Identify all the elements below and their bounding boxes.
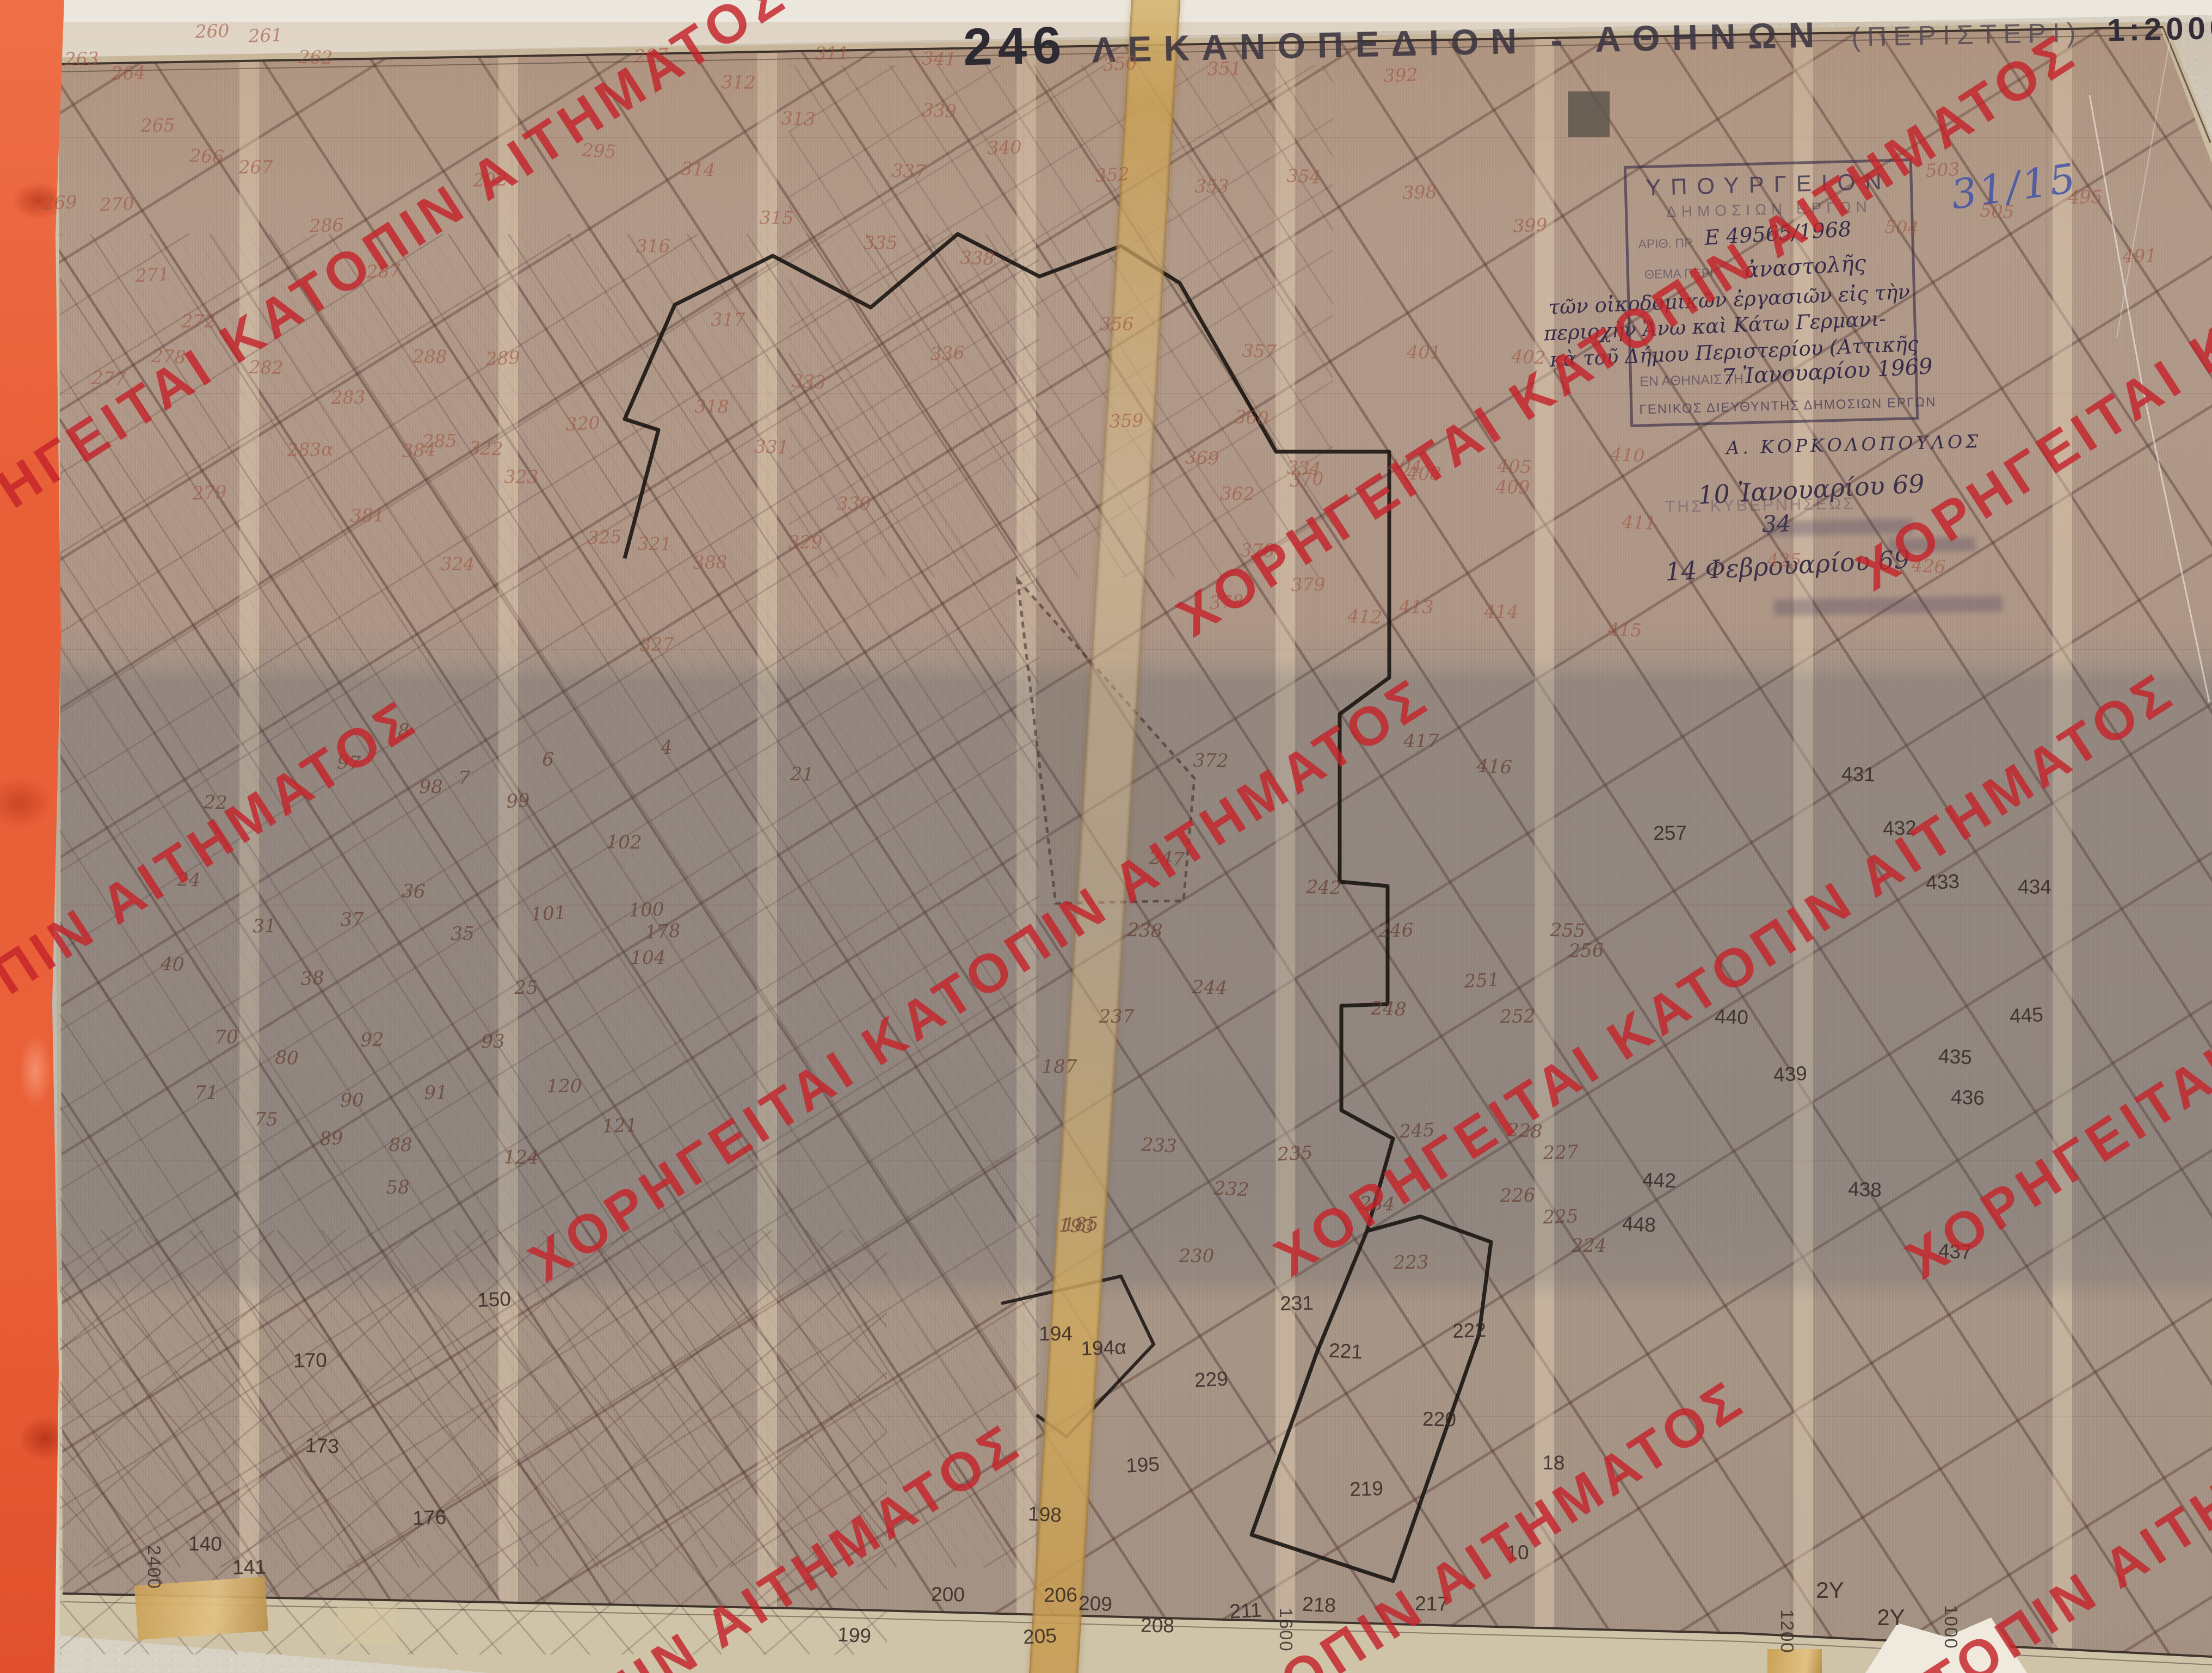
block-number: 504 [1884, 216, 1920, 239]
block-number: 265 [140, 114, 175, 136]
block-number: 233 [1141, 1134, 1178, 1157]
block-number: 173 [305, 1434, 339, 1458]
block-number: 224 [1572, 1235, 1607, 1257]
block-number: 206 [1044, 1583, 1077, 1607]
block-number: 266 [189, 145, 225, 168]
block-number: 372 [1193, 749, 1229, 772]
block-number: 260 [195, 20, 230, 42]
block-number: 244 [1192, 976, 1228, 999]
block-number: 335 [864, 232, 898, 254]
block-number: 93 [481, 1031, 505, 1053]
block-number: 350 [1102, 52, 1138, 75]
block-number: 359 [1109, 409, 1144, 432]
block-number: 405 [1497, 455, 1532, 477]
edge-coordinate-label: 1200 [1777, 1609, 1797, 1653]
block-number: 351 [1207, 58, 1242, 79]
block-number: 327 [639, 633, 674, 655]
block-number: 221 [1328, 1339, 1363, 1363]
block-number: 80 [274, 1047, 299, 1069]
block-number: 223 [1393, 1251, 1429, 1274]
block-number: 398 [1402, 181, 1437, 203]
block-number: 442 [1642, 1168, 1676, 1192]
block-number: 269 [42, 191, 77, 213]
area-mark: 2Y [1816, 1577, 1844, 1603]
block-number: 21 [790, 763, 815, 785]
block-number: 339 [922, 99, 957, 121]
faded-stamp-overprint: ΤΗΣ ΚΥΒΕΡΝΗΣΕΩΣ [1665, 495, 1856, 516]
block-number: 231 [1280, 1291, 1314, 1315]
block-number: 262 [298, 46, 333, 68]
block-number: 370 [1289, 468, 1324, 491]
block-number: 238 [1127, 919, 1163, 942]
block-number: 102 [606, 831, 642, 853]
block-number: 124 [503, 1146, 539, 1168]
block-number: 194 [1039, 1323, 1073, 1345]
area-mark: 2Y [1877, 1604, 1905, 1631]
block-number: 320 [565, 412, 601, 435]
block-number: 195 [1125, 1453, 1160, 1477]
block-number: 354 [1286, 165, 1322, 188]
block-number: 337 [891, 159, 926, 182]
block-number: 312 [721, 71, 756, 93]
block-number: 208 [1141, 1614, 1174, 1637]
block-number: 439 [1773, 1062, 1808, 1086]
block-number: 98 [419, 776, 442, 798]
block-number: 392 [1383, 64, 1418, 86]
block-number: 25 [514, 977, 538, 999]
block-number: 222 [1452, 1319, 1486, 1343]
block-number: 200 [931, 1583, 965, 1606]
block-number: 227 [1543, 1141, 1579, 1164]
block-number: 193 [1058, 1215, 1094, 1238]
block-number: 362 [1220, 483, 1255, 505]
block-number: 120 [547, 1075, 582, 1097]
block-number: 35 [451, 923, 475, 945]
block-number: 235 [1277, 1142, 1314, 1165]
block-number: 384 [402, 439, 437, 462]
block-number: 264 [111, 61, 146, 84]
block-number: 323 [504, 466, 539, 488]
block-number: 311 [815, 42, 849, 64]
block-number: 270 [100, 193, 134, 215]
block-number: 99 [506, 790, 530, 813]
block-number: 255 [1550, 919, 1586, 942]
block-number: 416 [1476, 755, 1513, 778]
block-number: 92 [360, 1029, 385, 1051]
block-number: 75 [254, 1109, 278, 1131]
block-number: 317 [711, 309, 745, 330]
block-number: 58 [386, 1177, 410, 1199]
block-number: 448 [1622, 1212, 1656, 1237]
block-number: 399 [1513, 214, 1548, 236]
scanned-map-page: 246 ΛΕΚΑΝΟΠΕΔΙΟΝ - ΑΘΗΝΩΝ (ΠΕΡΙΣΤΕΡΙ) 1:… [0, 0, 2212, 1673]
block-number: 338 [960, 247, 995, 269]
block-number: 505 [1980, 200, 2015, 223]
block-number: 257 [1653, 821, 1687, 845]
block-number: 279 [192, 481, 227, 504]
block-number: 187 [1042, 1056, 1077, 1078]
block-number: 256 [1568, 939, 1604, 962]
block-number: 315 [759, 207, 794, 229]
block-number: 40 [160, 953, 184, 976]
block-number: 121 [602, 1115, 638, 1137]
orange-edge-strip [0, 0, 64, 1673]
block-number: 91 [424, 1082, 448, 1104]
stamp-protocol-label: ΑΡΙΘ. ΠΡ. [1638, 236, 1695, 252]
block-number: 491 [2122, 244, 2157, 267]
block-number: 329 [788, 531, 823, 553]
block-number: 90 [340, 1090, 364, 1112]
block-number: 248 [1371, 998, 1407, 1020]
block-number: 150 [477, 1288, 511, 1312]
block-number: 434 [2018, 876, 2051, 899]
block-number: 140 [188, 1532, 222, 1555]
block-number: 230 [1179, 1245, 1215, 1267]
block-number: 7 [458, 767, 470, 789]
block-number: 271 [135, 263, 170, 286]
block-number: 352 [1095, 163, 1130, 186]
block-number: 314 [681, 158, 716, 181]
block-number: 176 [412, 1506, 446, 1530]
block-number: 333 [791, 370, 827, 393]
block-number: 431 [1841, 762, 1875, 786]
block-number: 283 [331, 386, 366, 408]
block-number: 411 [1622, 511, 1657, 534]
block-number: 252 [1500, 1005, 1536, 1028]
block-number: 209 [1078, 1592, 1112, 1616]
block-number: 445 [2009, 1003, 2044, 1028]
block-number: 495 [2068, 186, 2103, 208]
block-number: 226 [1500, 1184, 1536, 1207]
block-number: 313 [781, 107, 816, 130]
block-number: 263 [64, 48, 99, 70]
block-number: 232 [1213, 1177, 1250, 1201]
block-number: 436 [1950, 1086, 1985, 1110]
block-number: 170 [293, 1349, 327, 1372]
block-number: 316 [636, 235, 670, 257]
block-number: 412 [1347, 605, 1383, 628]
block-number: 37 [340, 909, 364, 931]
stamp-director-line: ΓΕΝΙΚΟΣ ΔΙΕΥΘΥΝΤΗΣ ΔΗΜΟΣΙΩΝ ΕΡΓΩΝ [1639, 395, 1937, 417]
block-number: 353 [1195, 176, 1229, 197]
block-number: 318 [694, 396, 729, 417]
block-number: 178 [645, 920, 681, 943]
block-number: 71 [194, 1082, 218, 1104]
block-number: 286 [309, 214, 344, 236]
block-number: 6 [542, 749, 554, 771]
block-number: 211 [1229, 1598, 1262, 1623]
block-number: 38 [300, 967, 324, 990]
block-number: 199 [837, 1623, 872, 1647]
block-number: 415 [1607, 618, 1642, 641]
tape-patch [337, 1606, 397, 1644]
block-number: 218 [1302, 1592, 1336, 1617]
block-number: 101 [531, 902, 567, 925]
block-number: 36 [402, 880, 426, 902]
block-number: 88 [389, 1134, 412, 1156]
block-number: 31 [252, 915, 276, 938]
block-number: 237 [1099, 1006, 1135, 1028]
block-number: 356 [1100, 313, 1134, 335]
block-number: 381 [350, 505, 385, 526]
block-number: 360 [1234, 406, 1269, 428]
block-number: 4 [660, 736, 673, 759]
block-number: 336 [930, 342, 965, 364]
block-number: 89 [319, 1127, 343, 1150]
block-number: 330 [837, 493, 871, 514]
block-number: 341 [922, 47, 957, 70]
block-number: 261 [248, 24, 283, 46]
block-number: 289 [485, 347, 521, 370]
block-number: 70 [214, 1026, 238, 1049]
block-number: 324 [441, 553, 475, 575]
block-number: 104 [631, 947, 666, 969]
block-number: 322 [469, 437, 503, 459]
edge-coordinate-label: 2400 [144, 1545, 164, 1589]
block-number: 267 [239, 157, 273, 178]
block-number: 414 [1484, 601, 1519, 623]
block-number: 198 [1027, 1502, 1062, 1527]
block-number: 205 [1022, 1624, 1057, 1649]
block-number: 340 [987, 136, 1022, 158]
block-number: 321 [637, 533, 672, 555]
block-number: 141 [232, 1555, 266, 1579]
block-number: 220 [1422, 1407, 1456, 1431]
block-number: 194α [1081, 1336, 1127, 1361]
block-number: 288 [412, 346, 447, 367]
map-scale: 1:2000 [2107, 10, 2212, 49]
block-number: 410 [1610, 444, 1646, 466]
block-number: 435 [1938, 1044, 1973, 1069]
block-number: 357 [1242, 340, 1277, 362]
block-number: 409 [1496, 477, 1530, 498]
block-number: 246 [1378, 919, 1414, 942]
block-number: 413 [1399, 596, 1434, 618]
block-number: 251 [1464, 969, 1500, 992]
sheet-number: 246 [963, 15, 1067, 77]
block-number: 283α [287, 439, 334, 460]
block-number: 401 [1407, 341, 1441, 363]
block-number: 425 [1767, 549, 1802, 571]
block-number: 438 [1847, 1178, 1882, 1202]
block-number: 325 [587, 526, 622, 548]
block-number: 242 [1306, 876, 1342, 899]
block-number: 219 [1349, 1477, 1383, 1501]
block-number: 331 [754, 435, 789, 458]
block-number: 369 [1185, 446, 1219, 469]
block-number: 225 [1543, 1205, 1579, 1228]
block-number: 388 [693, 551, 728, 573]
block-number: 229 [1194, 1367, 1229, 1392]
block-number: 100 [629, 899, 664, 921]
